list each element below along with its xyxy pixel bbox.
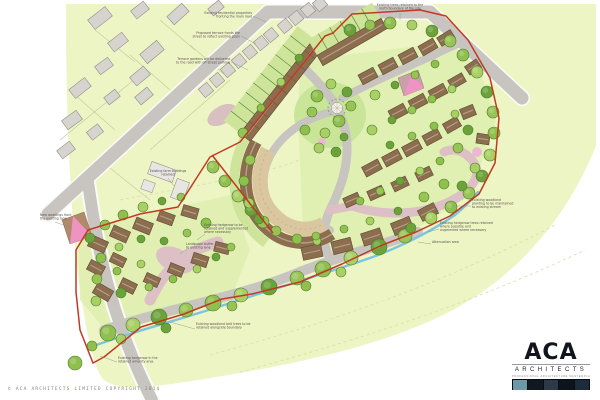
- tree: [87, 341, 97, 351]
- tree: [301, 281, 311, 291]
- tree: [430, 122, 438, 130]
- tree-highlight: [153, 311, 160, 318]
- photo-thumb: [528, 380, 543, 390]
- tree: [158, 197, 166, 205]
- tree: [227, 243, 235, 251]
- tree-highlight: [386, 19, 391, 24]
- tree: [239, 176, 249, 186]
- tree: [113, 267, 121, 275]
- tree: [406, 223, 416, 233]
- tree: [367, 125, 377, 135]
- tree-highlight: [346, 253, 352, 259]
- tree-highlight: [489, 108, 494, 113]
- tree: [96, 253, 106, 263]
- tree: [388, 116, 396, 124]
- proposed-house: [476, 133, 490, 145]
- tree: [257, 104, 265, 112]
- tree: [340, 133, 348, 141]
- tree: [314, 143, 324, 153]
- tree: [451, 110, 459, 118]
- annotation-note: Landscape bufferto existing lane: [186, 242, 214, 250]
- annotation-note: Existing trees retained to thenorth boun…: [377, 3, 424, 11]
- tree: [463, 125, 473, 135]
- tree: [312, 232, 320, 240]
- tree: [326, 79, 336, 89]
- tree: [346, 101, 356, 111]
- tree-highlight: [447, 203, 452, 208]
- annotation-note: Attenuation area: [432, 240, 459, 244]
- tree: [85, 233, 95, 243]
- tree: [115, 243, 123, 251]
- tree: [391, 81, 399, 89]
- masterplan-drawing: Existing residential propertiesfronting …: [0, 0, 600, 400]
- photo-thumb: [544, 380, 559, 390]
- tree: [396, 177, 404, 185]
- tree: [320, 128, 330, 138]
- tree: [453, 143, 463, 153]
- tree-highlight: [263, 281, 270, 288]
- tree: [457, 181, 467, 191]
- tree: [212, 253, 220, 261]
- tree: [365, 20, 375, 30]
- photo-thumb: [559, 380, 574, 390]
- tree-highlight: [459, 51, 464, 56]
- tree-highlight: [483, 88, 488, 93]
- annotation-note: Existing hedgerow in theretained amenity…: [118, 356, 158, 364]
- tree: [169, 275, 177, 283]
- tree: [408, 132, 416, 140]
- tree-highlight: [70, 358, 76, 364]
- tree: [419, 192, 429, 202]
- tree: [470, 163, 480, 173]
- tree: [366, 217, 374, 225]
- tree: [271, 226, 281, 236]
- tree: [300, 125, 310, 135]
- tree-highlight: [221, 177, 226, 182]
- tree: [331, 147, 341, 157]
- tree: [411, 71, 419, 79]
- annotation-note: Terrace gardens will be deliveredto the …: [176, 57, 230, 65]
- tree: [193, 265, 201, 273]
- tree-highlight: [428, 27, 433, 32]
- tree: [137, 260, 145, 268]
- copyright-text: © ACA ARCHITECTS LIMITED COPYRIGHT 2014: [8, 387, 160, 392]
- tree-highlight: [128, 320, 134, 326]
- photo-thumb: [575, 380, 590, 390]
- tree: [92, 274, 102, 284]
- tree-highlight: [335, 117, 340, 122]
- tree: [408, 106, 416, 114]
- tree-highlight: [317, 263, 324, 270]
- tree-highlight: [234, 192, 239, 197]
- tree-highlight: [473, 68, 478, 73]
- annotation-note: Proposed terrace fronts thestreet to ref…: [193, 31, 240, 39]
- logo-photo-strip: [512, 379, 590, 390]
- tree: [307, 107, 317, 117]
- tree-highlight: [427, 214, 432, 219]
- photo-thumb: [513, 380, 528, 390]
- tree: [439, 179, 449, 189]
- tree: [161, 323, 171, 333]
- logo-tagline: PROFESSIONAL ARCHITECTURE MASTERPLANNING…: [512, 375, 590, 378]
- tree: [428, 95, 436, 103]
- tree: [342, 87, 352, 97]
- tree-highlight: [209, 163, 214, 168]
- tree: [386, 141, 394, 149]
- tree: [245, 155, 255, 165]
- tree: [336, 267, 346, 277]
- tree: [227, 301, 237, 311]
- tree: [137, 235, 145, 243]
- tree-highlight: [292, 273, 298, 279]
- tree: [277, 78, 285, 86]
- tree: [160, 237, 168, 245]
- tree-highlight: [490, 129, 495, 134]
- tree: [91, 296, 101, 306]
- logo-name: ACA: [512, 344, 590, 362]
- tree: [416, 167, 424, 175]
- tree: [356, 197, 364, 205]
- tree: [295, 54, 303, 62]
- tree: [292, 234, 302, 244]
- tree: [340, 225, 348, 233]
- tree-highlight: [313, 92, 318, 97]
- tree-highlight: [181, 305, 187, 311]
- tree: [431, 60, 439, 68]
- tree-highlight: [446, 37, 451, 42]
- tree-highlight: [102, 327, 109, 334]
- tree: [376, 187, 384, 195]
- tree-highlight: [346, 26, 351, 31]
- logo-subtitle: ARCHITECTS: [512, 364, 590, 373]
- tree: [138, 202, 148, 212]
- tree: [394, 207, 402, 215]
- architect-logo: ACA ARCHITECTS PROFESSIONAL ARCHITECTURE…: [512, 344, 590, 390]
- tree: [448, 85, 456, 93]
- tree: [116, 288, 126, 298]
- tree: [145, 283, 153, 291]
- site-masterplan-sheet: Existing residential propertiesfronting …: [0, 0, 600, 400]
- tree: [436, 157, 444, 165]
- tree: [407, 20, 417, 30]
- tree: [370, 90, 380, 100]
- tree-highlight: [478, 172, 483, 177]
- tree-highlight: [486, 151, 491, 156]
- tree: [183, 229, 191, 237]
